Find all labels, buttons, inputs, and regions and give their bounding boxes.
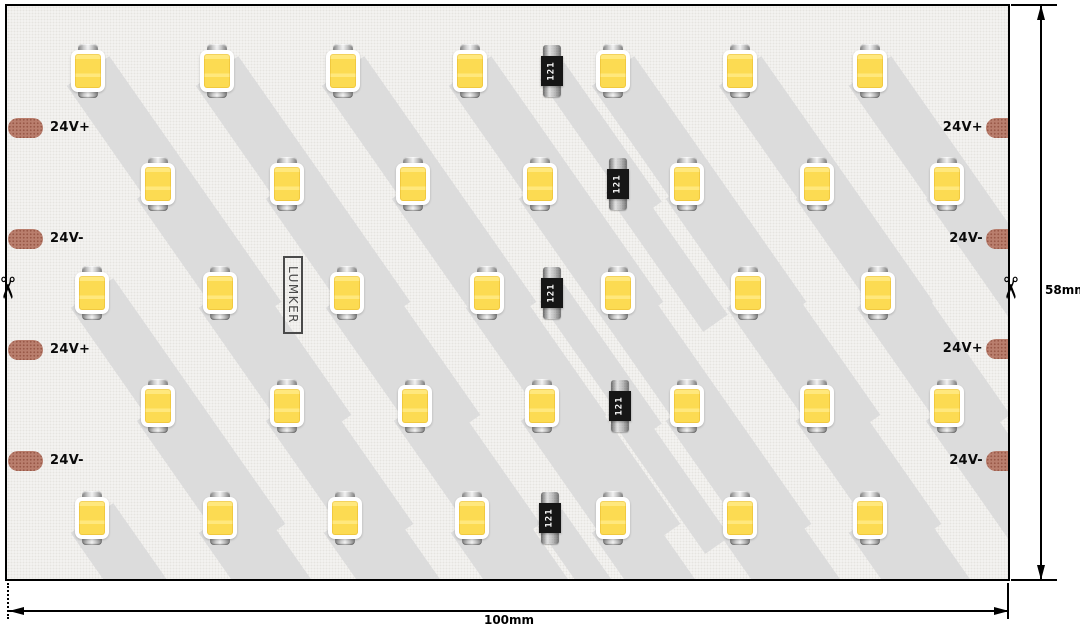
pad-voltage-label: 24V-: [50, 453, 84, 468]
led-phosphor-window: [207, 276, 233, 310]
solder-pad-left: [8, 229, 43, 249]
smd-led: [853, 491, 887, 545]
smd-led: [141, 379, 175, 433]
solder-pad-right: [986, 229, 1010, 249]
led-phosphor-window: [529, 389, 555, 423]
led-phosphor-window: [605, 276, 631, 310]
led-phosphor-window: [330, 54, 356, 88]
led-phosphor-window: [934, 167, 960, 201]
smd-led: [723, 44, 757, 98]
smd-led: [270, 157, 304, 211]
led-phosphor-window: [527, 167, 553, 201]
cut-mark-left-scissors-icon: ✂: [0, 273, 21, 303]
height-dimension-line: [1040, 5, 1042, 580]
resistor-value-label: 121: [613, 174, 623, 193]
smd-led: [670, 157, 704, 211]
led-phosphor-window: [674, 389, 700, 423]
smd-led: [398, 379, 432, 433]
component-layer: 12112112112112124V+24V-24V+24V-24V+24V-2…: [7, 6, 1008, 579]
smd-led: [270, 379, 304, 433]
smd-led: [328, 491, 362, 545]
solder-pad-left: [8, 118, 43, 138]
smd-led: [601, 266, 635, 320]
smd-led: [203, 266, 237, 320]
led-phosphor-window: [934, 389, 960, 423]
resistor-value-label: 121: [547, 61, 557, 80]
led-phosphor-window: [727, 54, 753, 88]
smd-led: [330, 266, 364, 320]
solder-pad-right: [986, 339, 1010, 359]
led-phosphor-window: [865, 276, 891, 310]
led-phosphor-window: [474, 276, 500, 310]
led-phosphor-window: [727, 501, 753, 535]
pad-voltage-label: 24V+: [943, 341, 983, 356]
led-strip-pcb: 12112112112112124V+24V-24V+24V-24V+24V-2…: [5, 4, 1010, 581]
led-phosphor-window: [204, 54, 230, 88]
smd-led: [525, 379, 559, 433]
resistor-body: 121: [609, 391, 631, 421]
solder-pad-left: [8, 340, 43, 360]
smd-led: [203, 491, 237, 545]
led-phosphor-window: [857, 501, 883, 535]
smd-led: [523, 157, 557, 211]
brand-logo-text: LUMKER: [286, 266, 300, 324]
smd-led: [930, 379, 964, 433]
led-phosphor-window: [804, 167, 830, 201]
pad-voltage-label: 24V-: [949, 231, 983, 246]
height-dimension-label: 58mm: [1045, 283, 1080, 297]
width-dimension-line: [9, 610, 1009, 612]
led-phosphor-window: [459, 501, 485, 535]
smd-resistor: 121: [541, 45, 563, 97]
pad-voltage-label: 24V-: [949, 453, 983, 468]
led-phosphor-window: [274, 389, 300, 423]
solder-pad-left: [8, 451, 43, 471]
led-phosphor-window: [600, 54, 626, 88]
resistor-body: 121: [541, 278, 563, 308]
smd-led: [396, 157, 430, 211]
resistor-body: 121: [607, 169, 629, 199]
smd-led: [200, 44, 234, 98]
solder-pad-right: [986, 451, 1010, 471]
smd-led: [75, 266, 109, 320]
extension-line-bottom: [1011, 579, 1057, 581]
smd-led: [861, 266, 895, 320]
solder-pad-right: [986, 118, 1010, 138]
pad-voltage-label: 24V-: [50, 231, 84, 246]
led-phosphor-window: [145, 389, 171, 423]
smd-led: [453, 44, 487, 98]
cut-mark-right-scissors-icon: ✂: [994, 273, 1024, 303]
led-phosphor-window: [332, 501, 358, 535]
led-phosphor-window: [674, 167, 700, 201]
led-phosphor-window: [334, 276, 360, 310]
led-phosphor-window: [400, 167, 426, 201]
resistor-value-label: 121: [547, 283, 557, 302]
arrow-down-icon: [1037, 565, 1045, 580]
led-phosphor-window: [600, 501, 626, 535]
led-phosphor-window: [145, 167, 171, 201]
smd-led: [455, 491, 489, 545]
smd-led: [326, 44, 360, 98]
smd-led: [930, 157, 964, 211]
smd-led: [723, 491, 757, 545]
pad-voltage-label: 24V+: [50, 342, 90, 357]
arrow-up-icon: [1037, 5, 1045, 20]
led-phosphor-window: [75, 54, 101, 88]
led-phosphor-window: [804, 389, 830, 423]
pad-voltage-label: 24V+: [50, 120, 90, 135]
smd-led: [670, 379, 704, 433]
resistor-value-label: 121: [615, 396, 625, 415]
width-dimension-label: 100mm: [0, 613, 1018, 627]
smd-resistor: 121: [609, 380, 631, 432]
smd-led: [596, 44, 630, 98]
resistor-body: 121: [541, 56, 563, 86]
led-phosphor-window: [207, 501, 233, 535]
smd-led: [141, 157, 175, 211]
led-phosphor-window: [457, 54, 483, 88]
smd-led: [470, 266, 504, 320]
led-strip-drawing: 12112112112112124V+24V-24V+24V-24V+24V-2…: [0, 0, 1080, 629]
smd-led: [731, 266, 765, 320]
extension-line-top: [1011, 4, 1057, 6]
smd-led: [596, 491, 630, 545]
smd-resistor: 121: [607, 158, 629, 210]
led-phosphor-window: [857, 54, 883, 88]
brand-logo: LUMKER: [283, 256, 303, 334]
led-phosphor-window: [79, 501, 105, 535]
smd-led: [800, 379, 834, 433]
smd-resistor: 121: [539, 492, 561, 544]
smd-resistor: 121: [541, 267, 563, 319]
resistor-value-label: 121: [545, 508, 555, 527]
led-phosphor-window: [735, 276, 761, 310]
led-phosphor-window: [79, 276, 105, 310]
smd-led: [853, 44, 887, 98]
smd-led: [800, 157, 834, 211]
smd-led: [71, 44, 105, 98]
led-phosphor-window: [274, 167, 300, 201]
resistor-body: 121: [539, 503, 561, 533]
led-phosphor-window: [402, 389, 428, 423]
smd-led: [75, 491, 109, 545]
pad-voltage-label: 24V+: [943, 120, 983, 135]
